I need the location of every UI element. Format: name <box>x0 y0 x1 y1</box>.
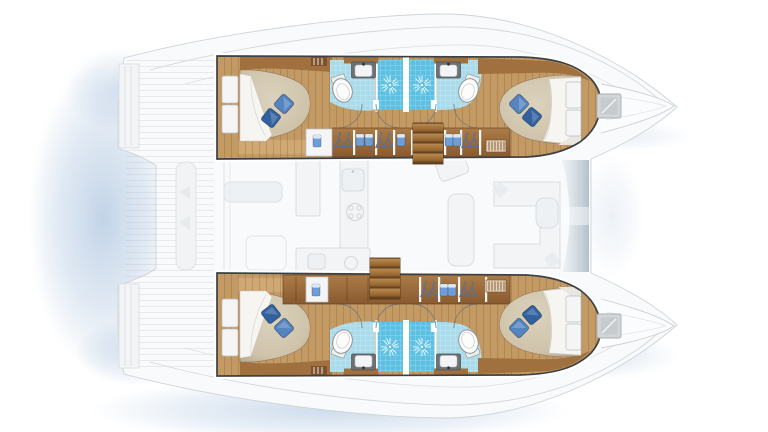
washbasin <box>437 354 461 370</box>
towel <box>440 284 448 296</box>
headboard-panel <box>566 110 581 136</box>
headboard-panel <box>222 76 238 103</box>
vent-grille <box>311 57 327 66</box>
towel <box>453 134 461 146</box>
transom-steps-top <box>119 64 139 148</box>
washbasin <box>352 62 376 78</box>
shower-drain <box>381 338 399 356</box>
catamaran-floor-plan <box>0 0 768 432</box>
transom-steps-bottom <box>119 284 139 368</box>
dining-table <box>536 198 558 228</box>
cockpit-table <box>224 182 282 202</box>
vent-grille <box>311 366 327 375</box>
headboard-panel <box>222 299 238 327</box>
top-wardrobe-row <box>306 128 510 157</box>
aft-galley-sink <box>308 254 325 269</box>
shower-drain <box>413 76 431 94</box>
bottom-hull-interior <box>217 272 607 376</box>
shower-drain <box>413 338 431 356</box>
towel <box>397 134 405 146</box>
towel <box>313 135 321 147</box>
towel <box>445 134 453 146</box>
galley-counter <box>296 158 320 216</box>
washbasin <box>437 62 461 78</box>
headboard-panel <box>222 329 238 356</box>
towel <box>312 284 320 296</box>
towel <box>365 134 373 146</box>
towel <box>356 134 364 146</box>
louver-vent <box>486 140 506 152</box>
bottom-companionway-steps <box>370 258 400 299</box>
shower-drain <box>381 76 399 94</box>
top-hull-interior <box>217 56 607 160</box>
headboard-panel <box>566 324 581 350</box>
floor-plan-stage <box>0 0 768 432</box>
deck-hatch-bottom <box>597 314 621 338</box>
aft-bench <box>176 162 196 270</box>
louver-vent <box>486 280 506 292</box>
towel <box>448 284 456 296</box>
deck-hatch-top <box>597 94 621 118</box>
headboard-panel <box>222 105 238 133</box>
top-companionway-steps <box>413 123 443 164</box>
headboard-panel <box>566 296 581 322</box>
headboard-panel <box>566 82 581 108</box>
washbasin <box>352 354 376 370</box>
settee <box>448 194 474 266</box>
